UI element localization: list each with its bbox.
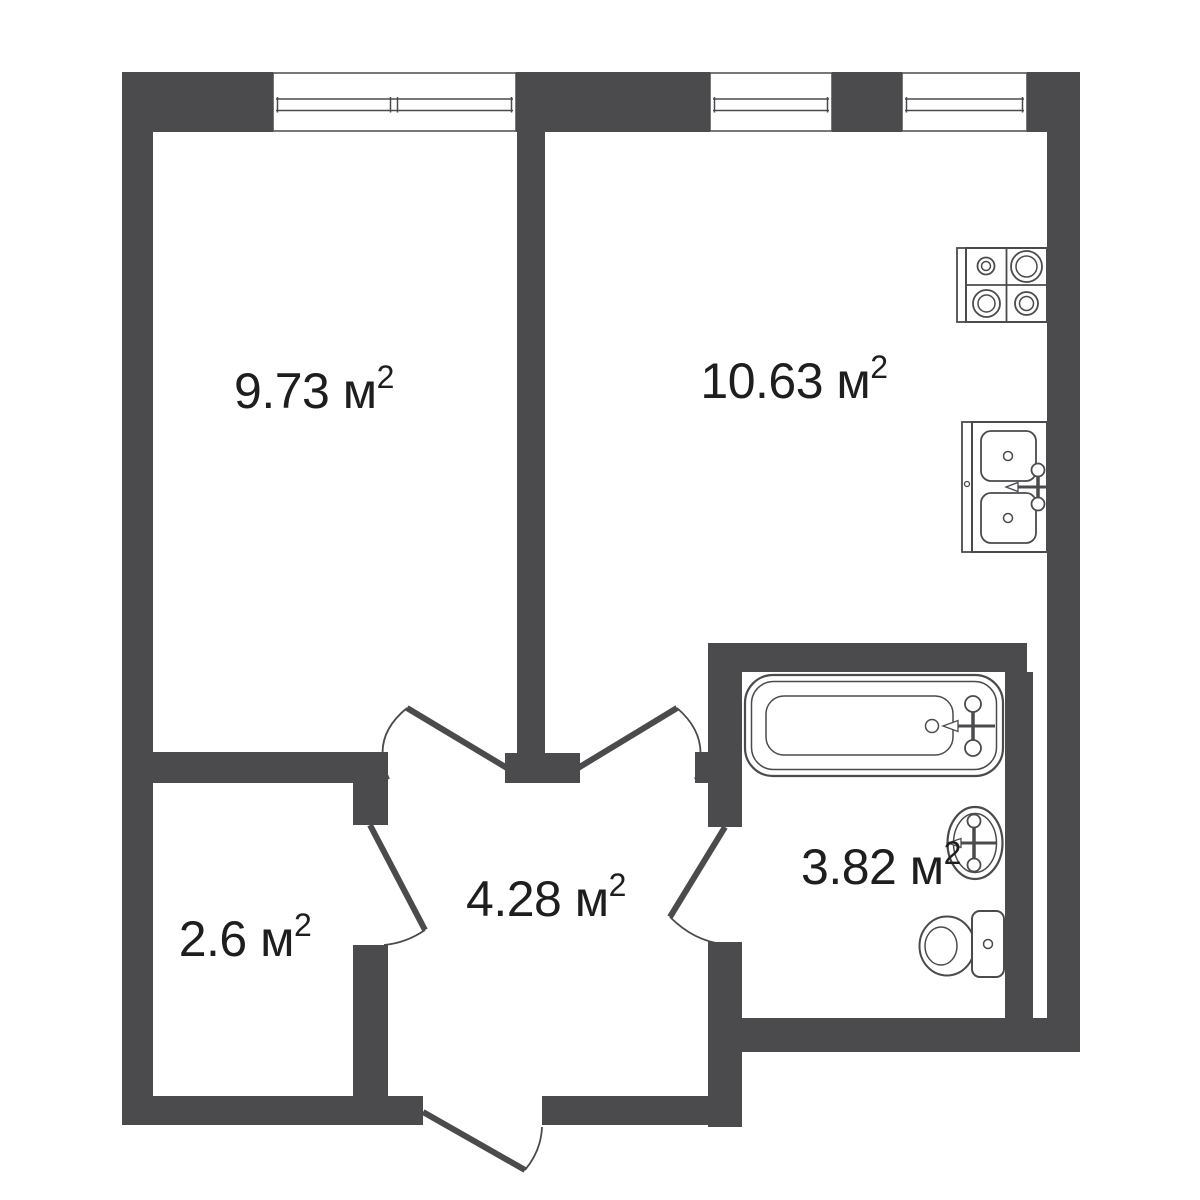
door-entry — [423, 1112, 542, 1170]
wall-bath-left-top — [708, 643, 742, 827]
door-room-top-left — [383, 708, 507, 779]
stove — [957, 248, 1047, 322]
bathtub — [745, 675, 1003, 776]
wall-storage-stub-top — [353, 783, 388, 825]
room-label-storage: 2.6 м2 — [179, 907, 312, 967]
wall-divider — [517, 72, 545, 753]
door-kitchen — [578, 708, 701, 779]
room-label-kitchen: 10.63 м2 — [700, 349, 887, 409]
wall-bath-inner-right — [1005, 672, 1033, 1018]
room-label-top-left: 9.73 м2 — [234, 359, 394, 419]
window-1 — [273, 73, 516, 131]
floor-plan-page: 9.73 м2 10.63 м2 4.28 м2 2.6 м2 3.82 м2 — [0, 0, 1200, 1200]
wall-bottom-left — [122, 1096, 423, 1125]
floor-plan: 9.73 м2 10.63 м2 4.28 м2 2.6 м2 3.82 м2 — [0, 0, 1200, 1200]
window-2 — [710, 73, 832, 131]
toilet-bowl — [920, 917, 975, 976]
door-storage — [370, 825, 425, 945]
wall-storage-stub-bottom — [353, 945, 388, 1096]
room-label-bathroom: 3.82 м2 — [801, 835, 961, 895]
window-3 — [902, 73, 1027, 131]
wall-left — [122, 72, 153, 1125]
wall-bath-top — [742, 643, 1027, 672]
wall-hall-kitchen-stub — [695, 752, 708, 783]
kitchen-sink — [962, 422, 1047, 552]
wall-bath-bottom — [708, 1018, 1080, 1052]
door-bathroom — [670, 827, 725, 944]
room-label-hallway: 4.28 м2 — [466, 867, 626, 927]
wall-right — [1047, 72, 1080, 1052]
toilet — [920, 911, 1005, 977]
wall-top-between-windows — [832, 72, 902, 132]
toilet-tank — [972, 911, 1004, 977]
wall-divider-base — [505, 753, 580, 783]
wall-top-mid — [516, 72, 710, 132]
wall-room1-bottom — [153, 752, 388, 783]
